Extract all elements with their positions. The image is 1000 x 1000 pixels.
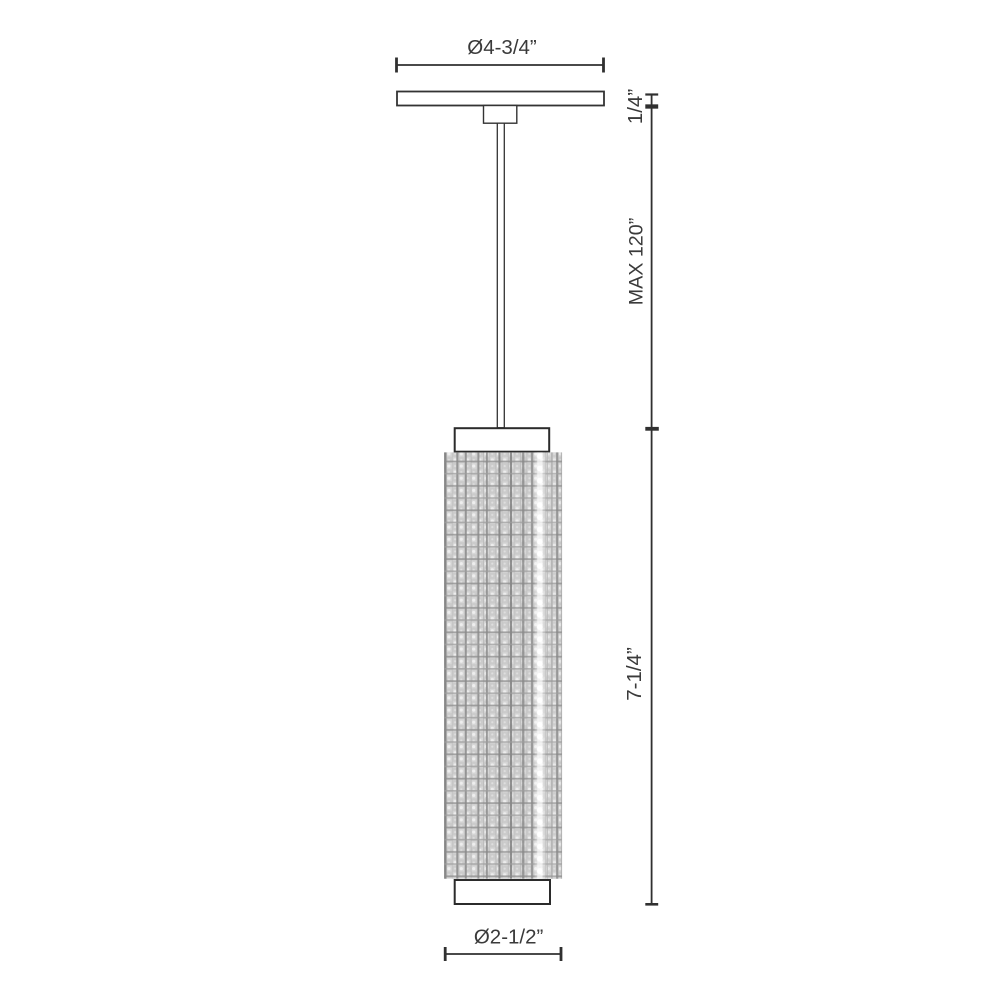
- svg-text:Ø4-3/4”: Ø4-3/4”: [467, 36, 537, 59]
- svg-text:Ø2-1/2”: Ø2-1/2”: [474, 926, 544, 949]
- svg-text:7-1/4”: 7-1/4”: [623, 647, 646, 701]
- svg-text:MAX 120”: MAX 120”: [626, 218, 648, 306]
- svg-text:1/4”: 1/4”: [624, 89, 647, 124]
